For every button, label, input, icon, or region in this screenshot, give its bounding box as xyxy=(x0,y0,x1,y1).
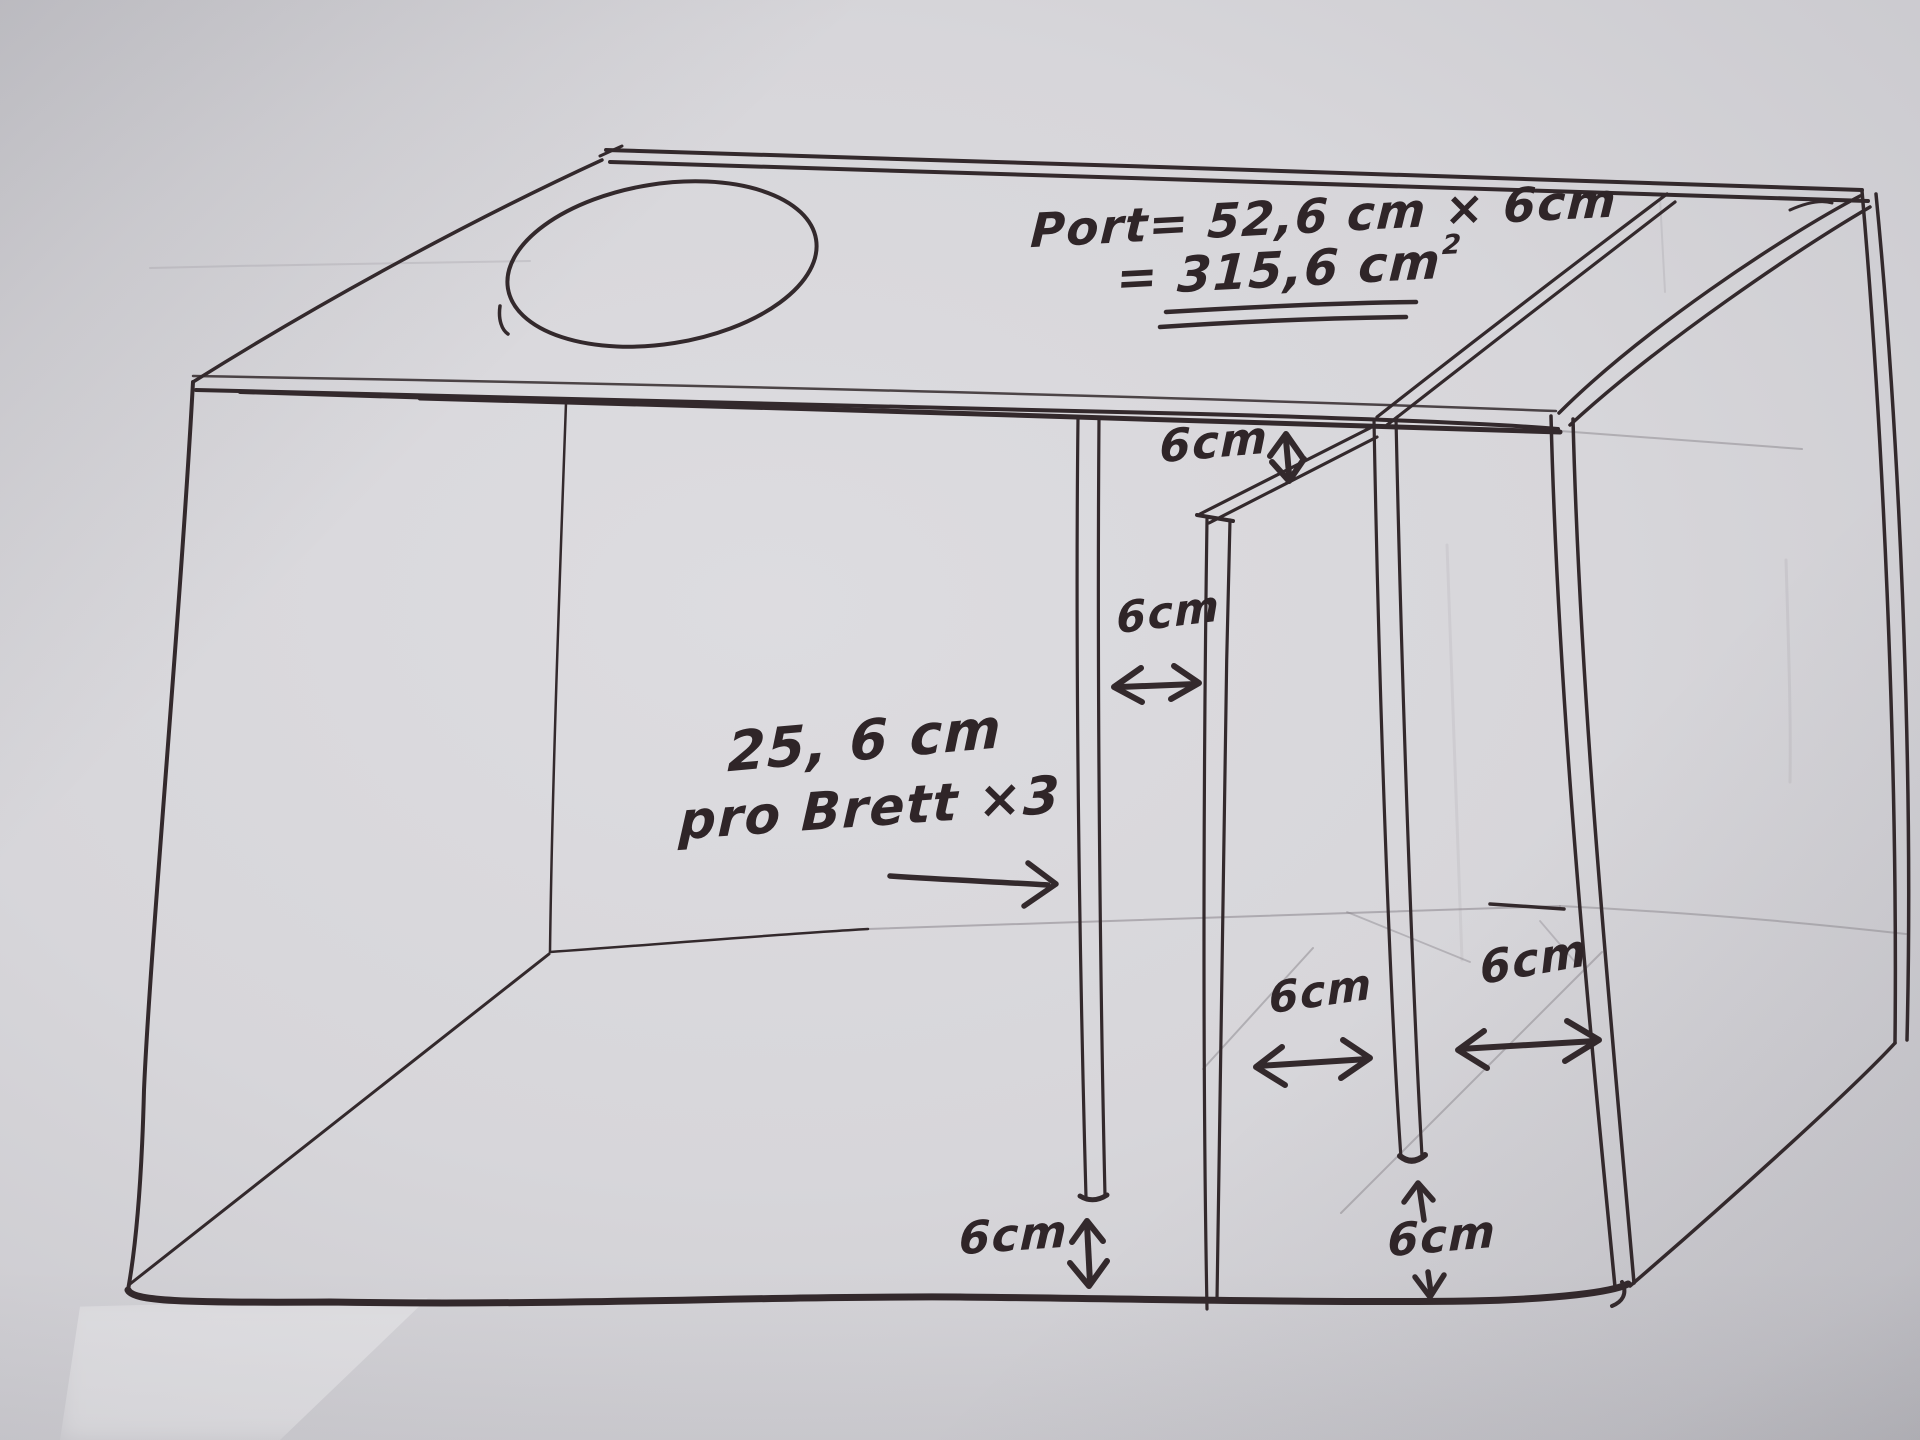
arrow-shaft xyxy=(1428,1272,1431,1293)
top-right-edge-inner xyxy=(1570,207,1870,425)
underline-stroke-2 xyxy=(1160,317,1406,327)
up-down-arrow-icon-board1-gap xyxy=(1070,1221,1107,1286)
left-right-arrow-icon-channel2 xyxy=(1256,1040,1370,1085)
arrow-shaft xyxy=(1120,684,1196,687)
top-front-edge-thick xyxy=(420,398,1560,432)
interior-floor-left-diagonal xyxy=(130,954,549,1284)
pencil-floor-line-right xyxy=(1560,906,1906,934)
paper-crease-1 xyxy=(150,261,530,268)
up-down-arrow-icon-slot xyxy=(1270,434,1304,481)
left-right-arrow-icon-channel1 xyxy=(1114,666,1199,702)
far-right-edge xyxy=(1862,191,1895,1043)
board1-left-edge xyxy=(1077,418,1086,1197)
box-outline xyxy=(128,146,1909,1306)
board1-right-edge xyxy=(1098,418,1105,1196)
bottom-right-edge xyxy=(1630,1043,1895,1286)
board1-bottom-gap-label: 6cm xyxy=(958,1204,1069,1265)
board2-right-edge xyxy=(1217,520,1230,1300)
bottom-front-edge xyxy=(128,1284,1628,1303)
right-arrow-icon-board-length xyxy=(890,863,1056,906)
pencil-diagonal-channel3 xyxy=(1341,952,1602,1213)
double-underline xyxy=(1160,302,1416,327)
board3-bottom-gap-label: 6cm xyxy=(1387,1204,1497,1267)
paper-crease-3 xyxy=(1786,560,1790,782)
top-back-edge xyxy=(606,150,1862,190)
board4-left-edge xyxy=(1551,416,1615,1287)
top-left-slant-edge xyxy=(193,160,602,382)
divider-boards xyxy=(1077,194,1675,1309)
board3-bottom-cap xyxy=(1400,1155,1425,1161)
arrow-shaft xyxy=(1286,440,1289,474)
arrow-shaft xyxy=(1258,1059,1368,1066)
board3-left-edge xyxy=(1374,420,1401,1158)
slot-height-label: 6cm xyxy=(1159,410,1269,473)
arrow-shaft xyxy=(890,876,1048,885)
down-arrow-icon-board3-gap xyxy=(1415,1272,1444,1297)
dimension-arrows xyxy=(890,434,1599,1297)
port-hole-ellipse xyxy=(495,161,828,368)
left-right-arrow-icon-channel3 xyxy=(1458,1021,1599,1068)
front-left-edge xyxy=(128,382,193,1290)
pencil-floor-line xyxy=(868,906,1560,929)
pencil-diagonal-short xyxy=(1347,912,1470,962)
board2-left-edge xyxy=(1204,519,1207,1309)
paper-crease-2 xyxy=(1447,545,1462,960)
arrow-shaft xyxy=(1087,1224,1090,1283)
interior-floor-back-edge xyxy=(550,929,868,952)
underline-stroke-1 xyxy=(1166,302,1416,312)
port-area-exponent: 2 xyxy=(1441,229,1463,261)
sketch-photo: Port= 52,6 cm × 6cm = 315,6 cm2 6cm 6cm … xyxy=(0,0,1920,1440)
far-right-edge-inner xyxy=(1876,194,1909,1040)
arrow-shaft xyxy=(1460,1041,1596,1049)
port-hole xyxy=(495,161,828,368)
interior-wall-left-edge xyxy=(550,403,566,952)
port-hole-pen-hook xyxy=(499,306,508,334)
board3-right-edge xyxy=(1396,419,1422,1156)
board1-bottom-cap xyxy=(1080,1195,1107,1200)
top-right-corner-mark xyxy=(1790,202,1832,210)
pencil-top-right-line xyxy=(1560,431,1802,449)
